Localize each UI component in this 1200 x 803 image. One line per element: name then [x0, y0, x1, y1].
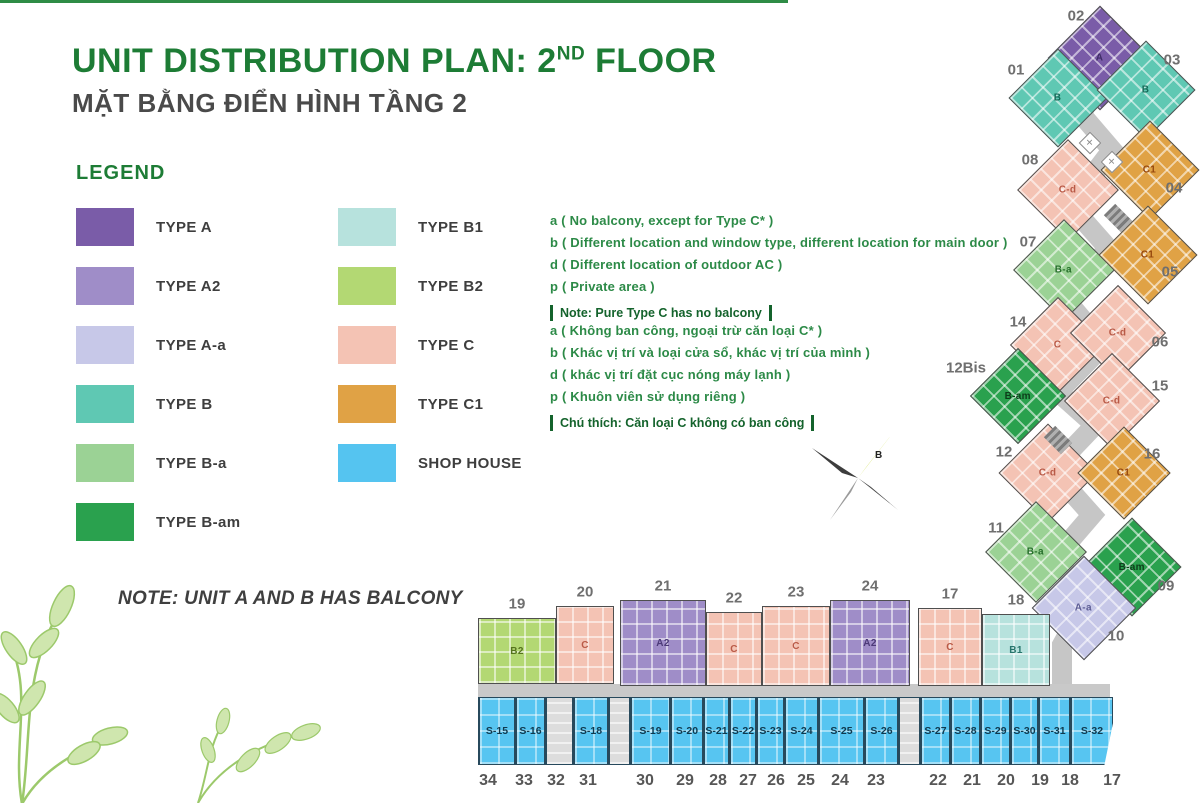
plan-building-21: A2 [620, 600, 706, 686]
shop-house-strip: S-15S-16S-18S-19S-20S-21S-22S-23S-24S-25… [478, 697, 1113, 765]
plan-building-20: C [556, 606, 614, 684]
unit-type-label: A2 [656, 638, 669, 649]
shop-unit-S-19: S-19 [630, 697, 670, 765]
street-number: 24 [831, 772, 849, 790]
unit-number-label: 24 [862, 578, 879, 595]
unit-type-label: C [581, 640, 589, 651]
unit-type-label: B [1142, 85, 1150, 96]
shop-unit-S-20: S-20 [670, 697, 703, 765]
unit-number-label: 17 [942, 586, 959, 603]
unit-type-label: B-am [1005, 391, 1031, 402]
unit-type-label: C [730, 644, 738, 655]
shop-unit-label: S-28 [954, 725, 976, 737]
unit-number-label: 01 [1008, 62, 1025, 79]
unit-number-label: 06 [1152, 334, 1169, 351]
plant-decoration-large [0, 548, 192, 803]
unit-number-label: 10 [1108, 628, 1125, 645]
unit-number-label: 07 [1020, 234, 1037, 251]
shop-unit-S-16: S-16 [515, 697, 545, 765]
unit-type-label: B1 [1009, 645, 1022, 656]
unit-type-label: B-a [1027, 546, 1044, 557]
unit-number-label: 20 [577, 584, 594, 601]
floor-plan-page: UNIT DISTRIBUTION PLAN: 2ND FLOOR MẶT BẰ… [0, 0, 1200, 803]
unit-type-label: B2 [510, 646, 523, 657]
shop-unit-label: S-22 [732, 725, 754, 737]
shop-unit-S-18: S-18 [573, 697, 608, 765]
unit-number-label: 16 [1144, 446, 1161, 463]
unit-number-label: 08 [1022, 152, 1039, 169]
plan-building-22: C [706, 612, 762, 686]
street-number: 28 [709, 772, 727, 790]
street-number: 18 [1061, 772, 1079, 790]
unit-type-label: C1 [1141, 249, 1154, 260]
street-number: 23 [867, 772, 885, 790]
unit-type-label: C1 [1117, 467, 1130, 478]
shop-unit-label: S-18 [580, 725, 602, 737]
shop-unit-label: S-30 [1013, 725, 1035, 737]
plan-building-19: B2 [478, 618, 556, 684]
compass-letter: B [875, 450, 882, 461]
shop-unit-S-30: S-30 [1010, 697, 1038, 765]
shop-unit-S-21: S-21 [703, 697, 729, 765]
plan-building-17: C [918, 608, 982, 686]
shop-unit-label: S-25 [830, 725, 852, 737]
unit-type-label: A2 [863, 638, 876, 649]
street-number: 29 [676, 772, 694, 790]
unit-type-label: B-a [1055, 264, 1072, 275]
street-number: 27 [739, 772, 757, 790]
unit-type-label: C1 [1143, 164, 1156, 175]
shop-unit-S-26: S-26 [864, 697, 898, 765]
shop-core-block [545, 697, 573, 765]
unit-number-label: 21 [655, 578, 672, 595]
unit-number-label: 04 [1166, 180, 1183, 197]
unit-type-label: C-d [1103, 396, 1121, 407]
unit-number-label: 14 [1010, 314, 1027, 331]
shop-unit-label: S-31 [1043, 725, 1065, 737]
shop-unit-S-25: S-25 [818, 697, 864, 765]
unit-type-label: A [1096, 53, 1104, 64]
unit-type-label: B-am [1119, 562, 1145, 573]
plan-building-24: A2 [830, 600, 910, 686]
shop-unit-label: S-20 [676, 725, 698, 737]
unit-number-label: 18 [1008, 592, 1025, 609]
unit-number-label: 12Bis [946, 360, 986, 377]
unit-number-label: 02 [1068, 8, 1085, 25]
street-number: 32 [547, 772, 565, 790]
unit-type-label: C [946, 642, 954, 653]
shop-unit-S-28: S-28 [950, 697, 980, 765]
compass-icon: B [808, 428, 908, 528]
shop-core-block [898, 697, 920, 765]
plant-decoration-small [178, 688, 328, 803]
street-number: 31 [579, 772, 597, 790]
plan-building-23: C [762, 606, 830, 686]
street-number: 34 [479, 772, 497, 790]
unit-type-label: C-d [1109, 328, 1127, 339]
unit-number-label: 11 [988, 520, 1004, 537]
unit-type-label: A-a [1075, 602, 1092, 613]
unit-number-label: 19 [509, 596, 526, 613]
unit-type-label: C [1054, 340, 1062, 351]
shop-unit-S-24: S-24 [784, 697, 818, 765]
shop-unit-label: S-27 [924, 725, 946, 737]
unit-number-label: 09 [1158, 578, 1175, 595]
lift-cross-icon: ✕ [1108, 157, 1116, 166]
shop-unit-S-32: S-32 [1070, 697, 1113, 765]
plan-building-18: B1 [982, 614, 1050, 686]
unit-type-label: C [792, 641, 800, 652]
unit-type-label: B [1054, 93, 1062, 104]
street-number: 17 [1103, 772, 1121, 790]
shop-unit-label: S-29 [984, 725, 1006, 737]
unit-type-label: C-d [1059, 185, 1077, 196]
shop-unit-S-29: S-29 [980, 697, 1010, 765]
shop-unit-S-31: S-31 [1038, 697, 1070, 765]
shop-unit-label: S-32 [1081, 725, 1103, 737]
street-number: 22 [929, 772, 947, 790]
shop-unit-S-15: S-15 [478, 697, 515, 765]
shop-unit-label: S-19 [639, 725, 661, 737]
unit-number-label: 05 [1162, 264, 1179, 281]
street-number: 30 [636, 772, 654, 790]
unit-number-label: 23 [788, 584, 805, 601]
shop-core-block [608, 697, 630, 765]
shop-unit-label: S-24 [790, 725, 812, 737]
shop-unit-label: S-21 [705, 725, 727, 737]
shop-unit-label: S-23 [759, 725, 781, 737]
shop-unit-S-27: S-27 [920, 697, 950, 765]
street-number: 21 [963, 772, 981, 790]
street-number: 26 [767, 772, 785, 790]
unit-number-label: 15 [1152, 378, 1169, 395]
unit-type-label: C-d [1039, 468, 1057, 479]
unit-number-label: 03 [1164, 52, 1181, 69]
shop-unit-S-23: S-23 [756, 697, 784, 765]
street-number: 25 [797, 772, 815, 790]
shop-unit-label: S-15 [486, 725, 508, 737]
unit-number-label: 12 [996, 444, 1013, 461]
shop-unit-label: S-16 [519, 725, 541, 737]
street-number: 20 [997, 772, 1015, 790]
lift-cross-icon: ✕ [1086, 138, 1094, 147]
unit-number-label: 22 [726, 590, 743, 607]
street-number: 19 [1031, 772, 1049, 790]
shop-unit-label: S-26 [870, 725, 892, 737]
shop-unit-S-22: S-22 [729, 697, 756, 765]
street-number: 33 [515, 772, 533, 790]
